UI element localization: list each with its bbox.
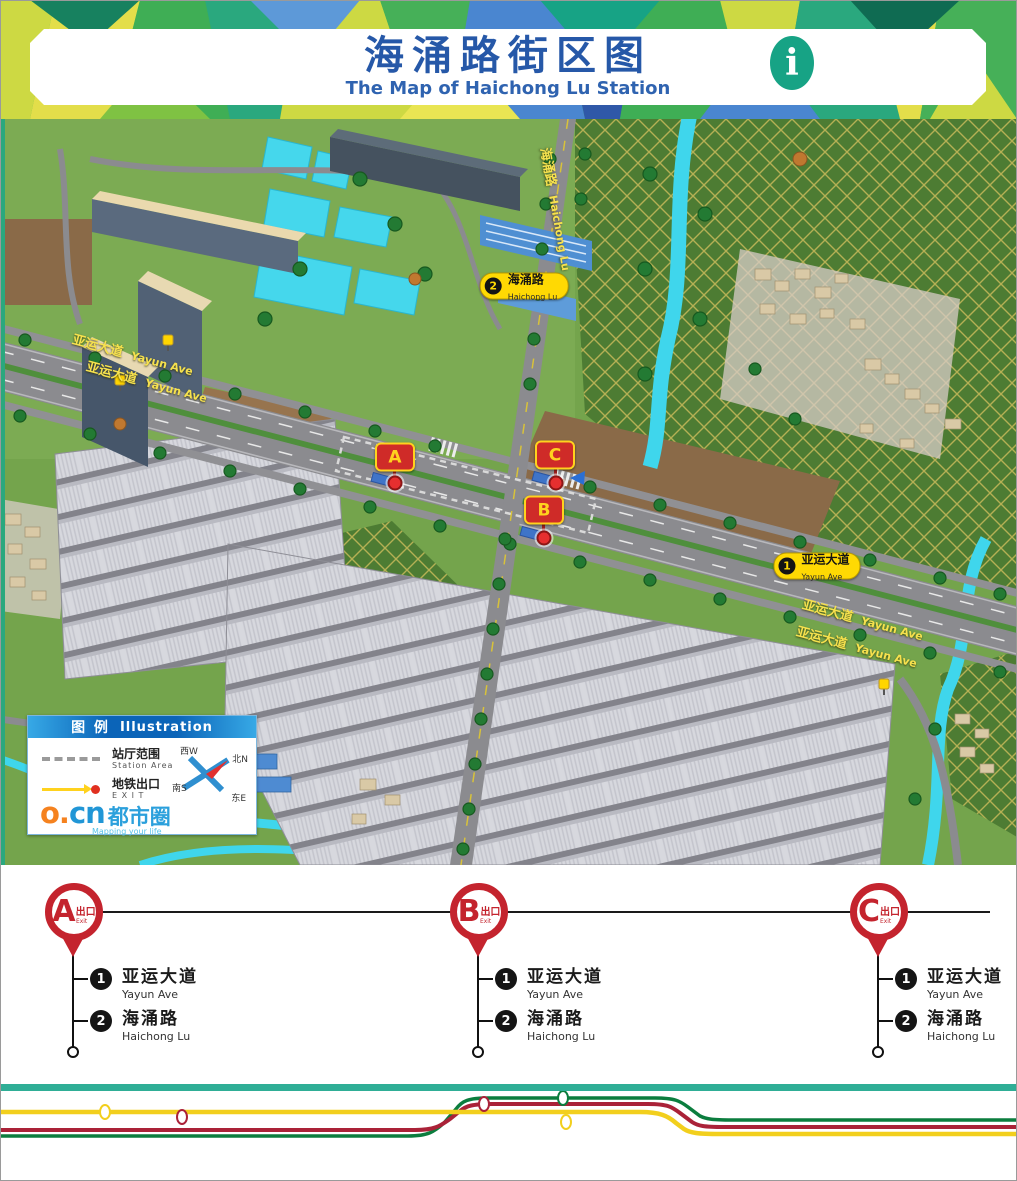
exit-street-row: 2 海涌路 Haichong Lu	[479, 1010, 595, 1043]
exit-pin-b: B 出口 Exit	[450, 883, 508, 941]
exit-street-row: 1 亚运大道 Yayun Ave	[479, 968, 603, 1001]
street-pill-haichong-lu: 2 海涌路 Haichong Lu	[480, 273, 569, 300]
metro-lines-art	[0, 1091, 1017, 1181]
legend-panel: 图 例 Illustration 站厅范围 Station Area 地铁出口 …	[27, 715, 257, 835]
exit-line-terminal	[67, 1046, 79, 1058]
exit-line-terminal	[872, 1046, 884, 1058]
page-subtitle: The Map of Haichong Lu Station	[346, 78, 671, 99]
metro-line-red	[0, 1104, 1017, 1130]
pill-number-badge: 2	[485, 278, 502, 295]
map-exit-marker-c: C	[535, 441, 575, 470]
exit-dot-a	[388, 476, 403, 491]
street-number-badge: 1	[895, 968, 917, 990]
exit-arrow-swatch	[42, 784, 100, 794]
legend-item-station-area: 站厅范围 Station Area	[42, 748, 173, 770]
street-number-badge: 1	[90, 968, 112, 990]
exit-street-row: 2 海涌路 Haichong Lu	[74, 1010, 190, 1043]
teal-divider-bar	[0, 1084, 1017, 1091]
station-map-page: 海涌路街区图 The Map of Haichong Lu Station i	[0, 0, 1017, 1181]
compass-icon: 西W 北N 南S 东E	[170, 746, 248, 802]
exit-dot-c	[549, 476, 564, 491]
exit-pin-c: C 出口 Exit	[850, 883, 908, 941]
street-number-badge: 1	[495, 968, 517, 990]
exit-street-row: 1 亚运大道 Yayun Ave	[879, 968, 1003, 1001]
dashed-line-swatch	[42, 757, 100, 761]
header: 海涌路街区图 The Map of Haichong Lu Station i	[0, 0, 1017, 119]
exit-dot-b	[537, 531, 552, 546]
street-pill-yayun-ave: 1 亚运大道 Yayun Ave	[773, 553, 860, 580]
street-map: 亚运大道Yayun Ave 亚运大道Yayun Ave 亚运大道Yayun Av…	[0, 119, 1017, 865]
street-number-badge: 2	[90, 1010, 112, 1032]
exit-pin-a: A 出口 Exit	[45, 883, 103, 941]
logo-tagline: Mapping your life	[92, 827, 162, 836]
exit-street-row: 2 海涌路 Haichong Lu	[879, 1010, 995, 1043]
ocn-logo: o.cn 都市圈	[40, 799, 171, 828]
map-exit-marker-b: B	[524, 496, 564, 525]
title-banner: 海涌路街区图 The Map of Haichong Lu Station	[30, 29, 986, 105]
map-exit-marker-a: A	[375, 443, 415, 472]
exit-column-a: A 出口 Exit 1 亚运大道 Yayun Ave 2 海涌路 Haichon…	[43, 865, 303, 1084]
exit-street-row: 1 亚运大道 Yayun Ave	[74, 968, 198, 1001]
info-icon: i	[770, 36, 814, 90]
exit-list-section: A 出口 Exit 1 亚运大道 Yayun Ave 2 海涌路 Haichon…	[0, 865, 1017, 1084]
exit-column-b: B 出口 Exit 1 亚运大道 Yayun Ave 2 海涌路 Haichon…	[448, 865, 708, 1084]
street-number-badge: 2	[495, 1010, 517, 1032]
street-number-badge: 2	[895, 1010, 917, 1032]
exit-line-terminal	[472, 1046, 484, 1058]
pill-number-badge: 1	[778, 558, 795, 575]
exit-column-c: C 出口 Exit 1 亚运大道 Yayun Ave 2 海涌路 Haichon…	[848, 865, 1017, 1084]
legend-header: 图 例 Illustration	[28, 716, 256, 738]
page-title: 海涌路街区图	[364, 35, 652, 77]
